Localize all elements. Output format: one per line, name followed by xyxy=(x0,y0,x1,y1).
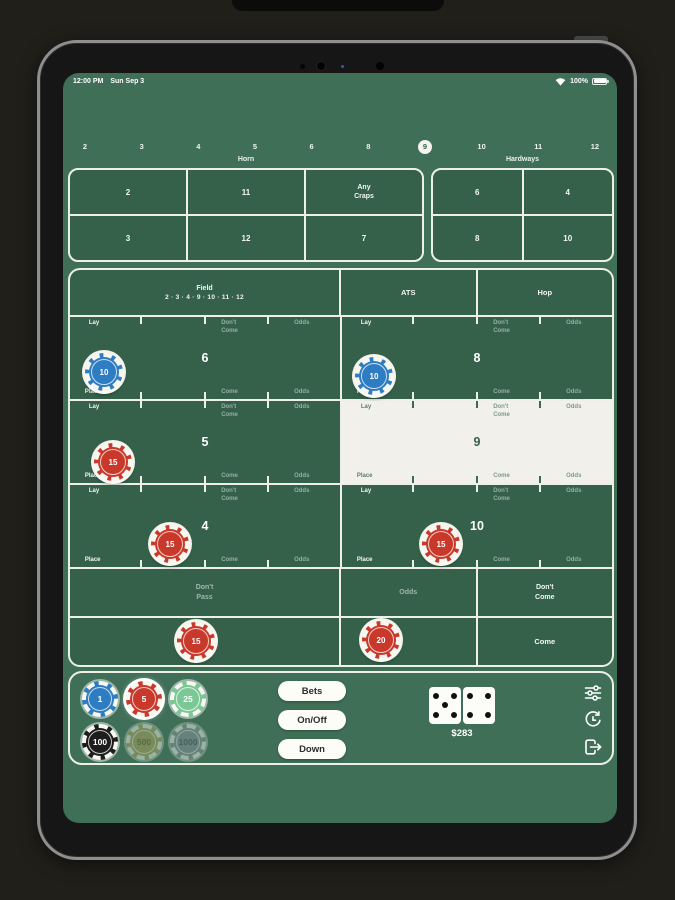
balance-amount: $283 xyxy=(428,728,496,739)
battery-icon xyxy=(592,78,607,85)
bet-dont-pass[interactable]: Don't Pass xyxy=(70,569,339,616)
chip-on-10[interactable]: 15 xyxy=(422,525,460,563)
point-box-10[interactable]: Lay Don't Come Odds 10 Place Come Odds 1… xyxy=(342,485,612,567)
bet-horn-12[interactable]: 12 xyxy=(188,216,304,260)
bet-hard-4[interactable]: 4 xyxy=(524,170,613,214)
chip-selector: 1 5 25 100 500 1000 xyxy=(82,681,206,760)
indicator-3: 3 xyxy=(135,142,149,151)
chip-on-8[interactable]: 10 xyxy=(355,357,393,395)
bet-ats[interactable]: ATS xyxy=(341,270,476,315)
bet-pass-line[interactable]: 15 xyxy=(70,618,339,665)
indicator-6: 6 xyxy=(305,142,319,151)
chip-come-area[interactable]: 20 xyxy=(362,621,400,659)
tray-chip-100[interactable]: 100 xyxy=(82,724,118,760)
indicator-10: 10 xyxy=(475,142,489,151)
bet-horn-11[interactable]: 11 xyxy=(188,170,304,214)
bet-come-area[interactable]: 20 xyxy=(341,618,476,665)
point-box-4[interactable]: Lay Don't Come Odds 4 Place Come Odds 15 xyxy=(70,485,340,567)
host-device-notch xyxy=(232,0,444,11)
chip-on-4[interactable]: 15 xyxy=(151,525,189,563)
dice-display: $283 xyxy=(428,687,496,739)
die-1 xyxy=(429,687,461,724)
tray-chip-500[interactable]: 500 xyxy=(126,724,162,760)
sensor-dot xyxy=(376,62,384,70)
indicator-4: 4 xyxy=(191,142,205,151)
down-button[interactable]: Down xyxy=(278,739,346,759)
bet-any-craps[interactable]: Any Craps xyxy=(306,170,422,214)
bet-dont-come[interactable]: Don't Come xyxy=(478,569,613,616)
hardways-section-label: Hardways xyxy=(431,156,614,163)
status-bar: 12:00 PMSun Sep 3 100% xyxy=(63,73,617,89)
bets-button[interactable]: Bets xyxy=(278,681,346,701)
indicator-8: 8 xyxy=(361,142,375,151)
onoff-button[interactable]: On/Off xyxy=(278,710,346,730)
bet-hop[interactable]: Hop xyxy=(478,270,613,315)
battery-percent: 100% xyxy=(570,78,588,85)
camera-indicator-dot xyxy=(341,65,344,68)
point-puck-9: 9 xyxy=(418,140,432,154)
die-2 xyxy=(463,687,495,724)
tray-chip-25[interactable]: 25 xyxy=(170,681,206,717)
app-screen: 12:00 PMSun Sep 3 100% 2 3 4 5 6 8 9 10 … xyxy=(63,73,617,823)
bet-hard-8[interactable]: 8 xyxy=(433,216,522,260)
indicator-2: 2 xyxy=(78,142,92,151)
camera-dot xyxy=(300,64,305,69)
bet-odds-center[interactable]: Odds xyxy=(341,569,476,616)
point-box-8[interactable]: Lay Don't Come Odds 8 Place Come Odds 10 xyxy=(342,317,612,399)
horn-section-label: Horn xyxy=(68,156,424,163)
bet-hard-10[interactable]: 10 xyxy=(524,216,613,260)
point-indicator-row: 2 3 4 5 6 8 9 10 11 12 xyxy=(70,139,610,154)
indicator-12: 12 xyxy=(588,142,602,151)
tablet-frame: 12:00 PMSun Sep 3 100% 2 3 4 5 6 8 9 10 … xyxy=(37,40,637,860)
status-date: Sun Sep 3 xyxy=(110,78,144,85)
chip-on-5[interactable]: 15 xyxy=(94,443,132,481)
horn-section: 2 11 Any Craps 3 12 7 xyxy=(68,168,424,262)
wifi-icon xyxy=(555,77,566,86)
bet-horn-3[interactable]: 3 xyxy=(70,216,186,260)
point-box-5[interactable]: Lay Don't Come Odds 5 Place Come Odds 15 xyxy=(70,401,340,483)
chip-on-6[interactable]: 10 xyxy=(85,353,123,391)
indicator-5: 5 xyxy=(248,142,262,151)
hardways-section: 6 4 8 10 xyxy=(431,168,614,262)
bet-come[interactable]: Come xyxy=(478,618,613,665)
control-tray: 1 5 25 100 500 1000 Bets On/Off Down $28… xyxy=(68,671,614,765)
bet-horn-2[interactable]: 2 xyxy=(70,170,186,214)
bet-seven[interactable]: 7 xyxy=(306,216,422,260)
chip-pass-line[interactable]: 15 xyxy=(177,622,215,660)
history-undo-icon[interactable] xyxy=(584,711,602,729)
bet-hard-6[interactable]: 6 xyxy=(433,170,522,214)
indicator-11: 11 xyxy=(531,142,545,151)
main-table: Field 2 · 3 · 4 · 9 · 10 · 11 · 12 ATS H… xyxy=(68,268,614,667)
power-button xyxy=(574,36,608,44)
settings-sliders-icon[interactable] xyxy=(584,684,602,702)
status-time: 12:00 PM xyxy=(73,78,103,85)
point-box-9-active[interactable]: Lay Don't Come Odds 9 Place Come Odds xyxy=(342,401,612,483)
bet-field[interactable]: Field 2 · 3 · 4 · 9 · 10 · 11 · 12 xyxy=(70,270,339,315)
exit-icon[interactable] xyxy=(584,738,602,756)
point-box-6[interactable]: Lay Don't Come Odds 6 Place Come Odds 10 xyxy=(70,317,340,399)
tray-chip-1000[interactable]: 1000 xyxy=(170,724,206,760)
front-camera xyxy=(317,62,325,70)
tray-chip-1[interactable]: 1 xyxy=(82,681,118,717)
tray-chip-5-selected[interactable]: 5 xyxy=(126,681,162,717)
